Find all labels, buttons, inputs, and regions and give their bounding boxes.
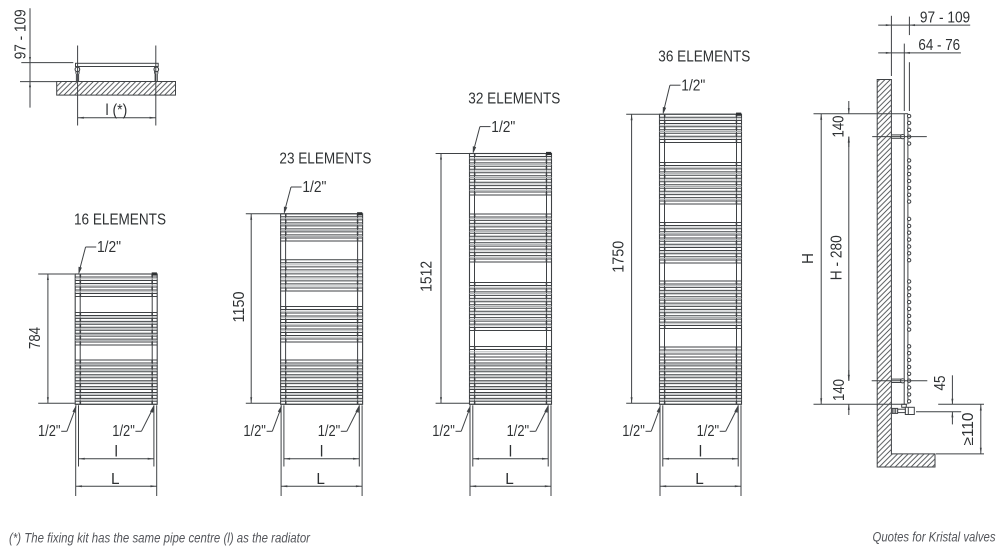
svg-text:140: 140 — [830, 116, 847, 138]
svg-text:97 - 109: 97 - 109 — [920, 9, 970, 26]
svg-text:23 ELEMENTS: 23 ELEMENTS — [279, 151, 371, 168]
svg-text:l: l — [509, 443, 512, 460]
svg-text:≥110: ≥110 — [960, 413, 977, 446]
svg-text:l: l — [114, 443, 117, 460]
svg-text:36 ELEMENTS: 36 ELEMENTS — [658, 48, 750, 65]
svg-text:1/2": 1/2" — [318, 423, 341, 440]
svg-text:L: L — [505, 471, 514, 488]
svg-text:140: 140 — [831, 379, 848, 401]
svg-text:97 - 109: 97 - 109 — [13, 9, 30, 59]
svg-text:784: 784 — [27, 327, 44, 349]
svg-text:1750: 1750 — [610, 241, 627, 273]
svg-text:1150: 1150 — [231, 292, 248, 323]
svg-text:l (*): l (*) — [106, 102, 128, 119]
svg-text:1/2": 1/2" — [302, 179, 326, 196]
svg-text:H: H — [800, 253, 817, 264]
svg-text:1/2": 1/2" — [681, 77, 705, 94]
svg-text:L: L — [695, 471, 704, 488]
svg-text:1/2": 1/2" — [507, 423, 530, 440]
svg-text:l: l — [320, 443, 323, 460]
svg-text:L: L — [111, 471, 120, 488]
svg-text:L: L — [316, 471, 325, 488]
svg-text:64 - 76: 64 - 76 — [918, 37, 960, 54]
svg-text:1/2": 1/2" — [697, 423, 720, 440]
svg-text:16 ELEMENTS: 16 ELEMENTS — [74, 212, 166, 229]
svg-text:1/2": 1/2" — [112, 423, 135, 440]
svg-text:1/2": 1/2" — [38, 423, 61, 440]
svg-text:1/2": 1/2" — [97, 239, 121, 256]
svg-text:H - 280: H - 280 — [828, 235, 845, 280]
svg-text:1512: 1512 — [419, 261, 436, 292]
svg-text:(*) The fixing kit has the sam: (*) The fixing kit has the same pipe cen… — [9, 531, 310, 546]
svg-text:32 ELEMENTS: 32 ELEMENTS — [468, 90, 560, 107]
svg-text:1/2": 1/2" — [622, 423, 645, 440]
svg-text:45: 45 — [932, 376, 949, 391]
svg-text:1/2": 1/2" — [491, 119, 515, 136]
svg-text:1/2": 1/2" — [432, 423, 455, 440]
svg-text:1/2": 1/2" — [243, 423, 266, 440]
svg-text:l: l — [699, 443, 702, 460]
svg-text:Quotes for Kristal valves: Quotes for Kristal valves — [873, 530, 996, 545]
